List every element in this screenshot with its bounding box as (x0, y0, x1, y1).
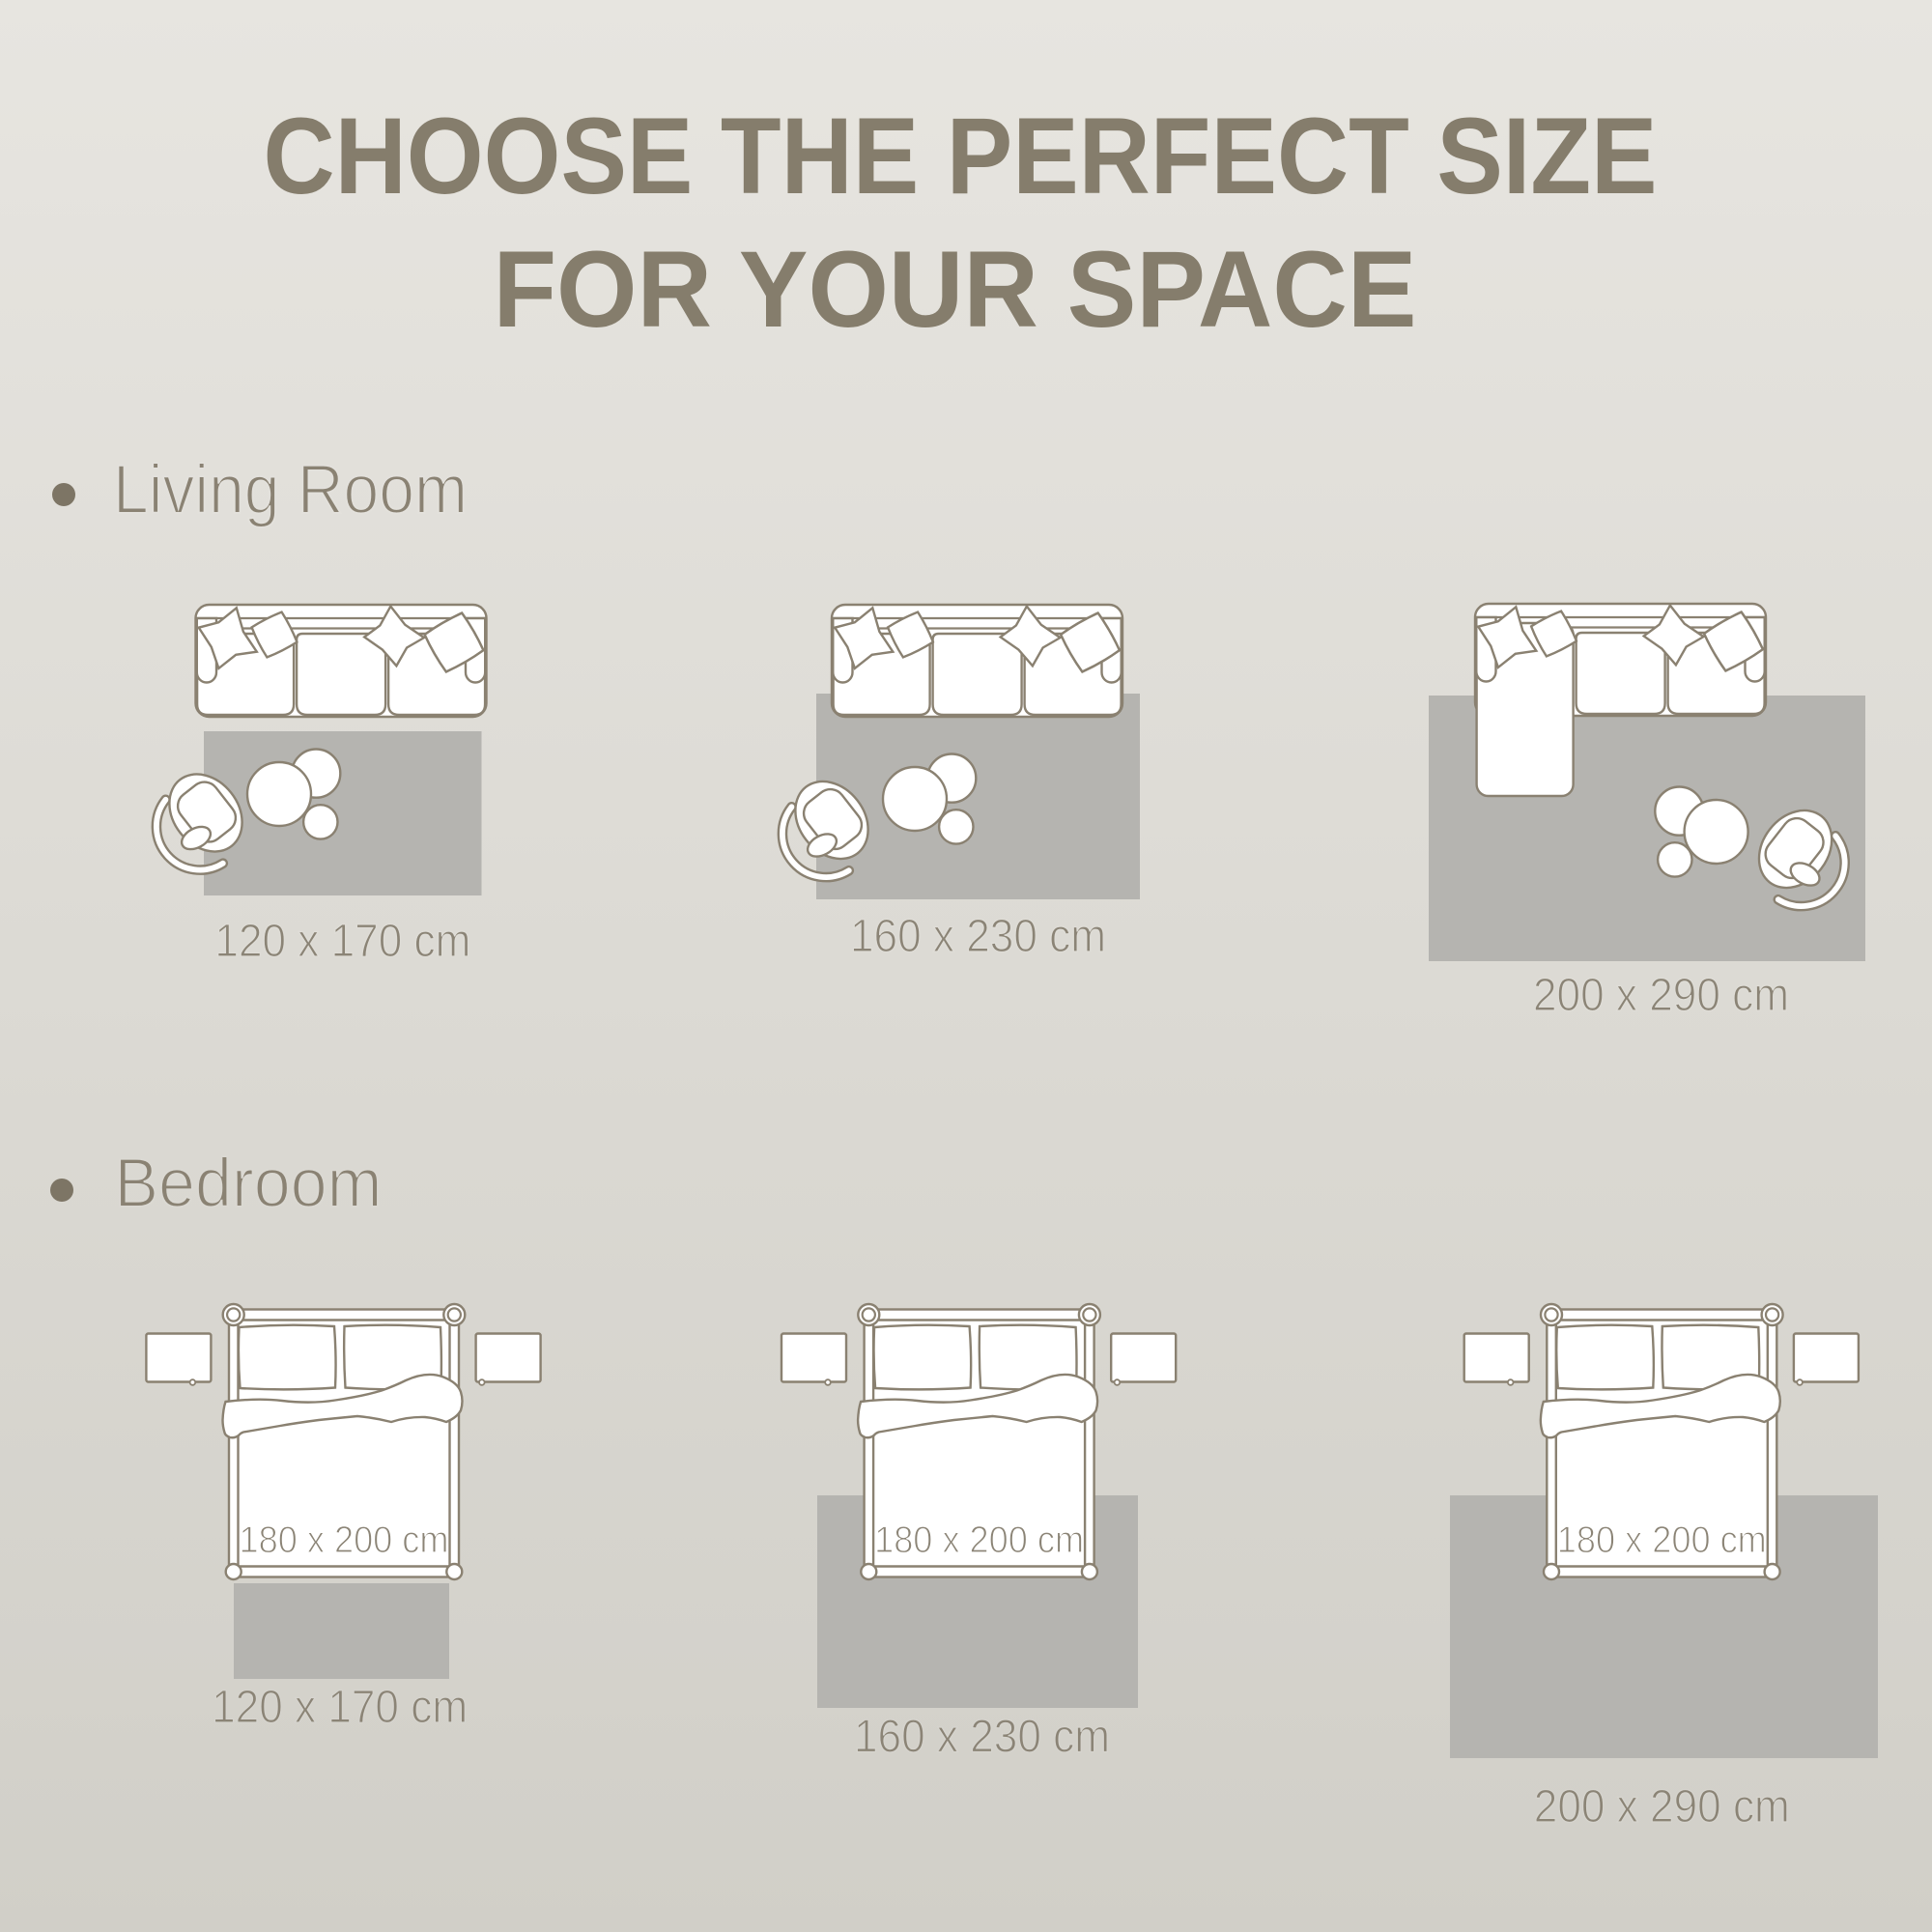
svg-text:160 x 230 cm: 160 x 230 cm (854, 1712, 1110, 1763)
svg-text:Bedroom: Bedroom (115, 1146, 383, 1222)
svg-text:200 x 290 cm: 200 x 290 cm (1533, 970, 1789, 1021)
svg-text:180 x 200 cm: 180 x 200 cm (240, 1520, 449, 1561)
svg-text:CHOOSE THE PERFECT SIZE: CHOOSE THE PERFECT SIZE (264, 96, 1658, 216)
svg-text:FOR YOUR SPACE: FOR YOUR SPACE (494, 229, 1417, 350)
svg-text:120 x 170 cm: 120 x 170 cm (214, 916, 470, 967)
svg-text:Living Room: Living Room (113, 452, 468, 528)
svg-text:180 x 200 cm: 180 x 200 cm (1557, 1520, 1767, 1561)
svg-text:200 x 290 cm: 200 x 290 cm (1534, 1781, 1790, 1833)
svg-text:180 x 200 cm: 180 x 200 cm (874, 1520, 1084, 1561)
svg-text:160 x 230 cm: 160 x 230 cm (850, 911, 1106, 962)
svg-text:120 x 170 cm: 120 x 170 cm (212, 1682, 468, 1733)
